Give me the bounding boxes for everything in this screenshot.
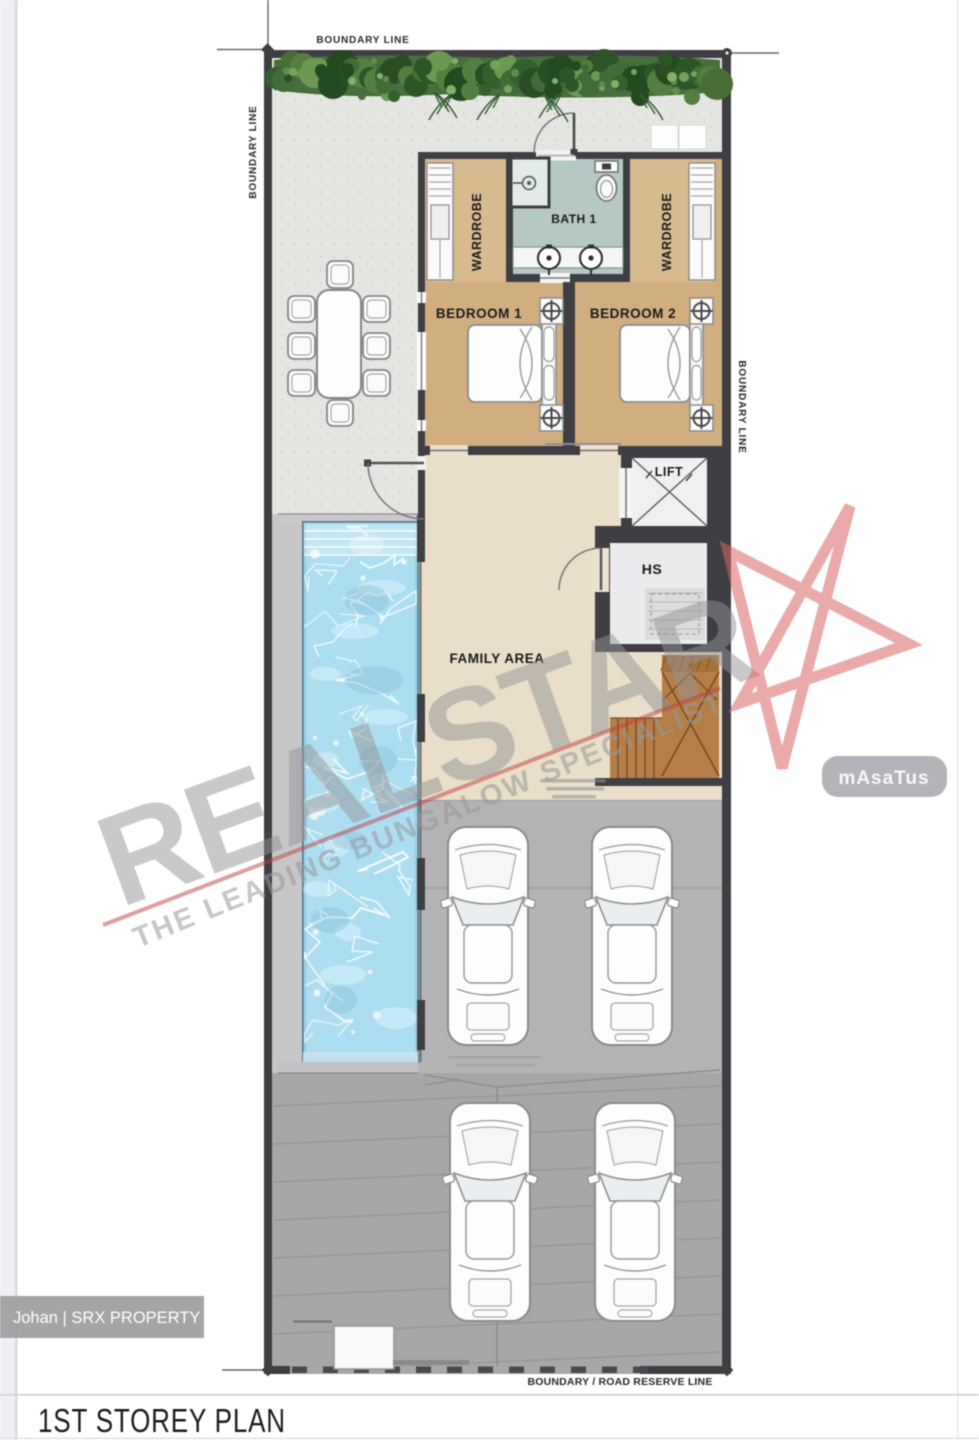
svg-text:BOUNDARY LINE: BOUNDARY LINE xyxy=(316,35,409,46)
svg-text:HS: HS xyxy=(642,561,662,577)
svg-text:BOUNDARY LINE: BOUNDARY LINE xyxy=(736,360,747,453)
svg-text:1ST STOREY PLAN: 1ST STOREY PLAN xyxy=(38,1403,286,1440)
svg-text:BOUNDARY LINE: BOUNDARY LINE xyxy=(248,105,259,198)
svg-text:LIFT: LIFT xyxy=(655,465,683,479)
svg-text:mAsaTus: mAsaTus xyxy=(838,768,929,789)
svg-text:Johan | SRX PROPERTY: Johan | SRX PROPERTY xyxy=(13,1309,200,1327)
svg-text:WARDROBE: WARDROBE xyxy=(660,193,674,271)
svg-text:WARDROBE: WARDROBE xyxy=(470,193,484,271)
svg-text:BEDROOM 2: BEDROOM 2 xyxy=(590,306,676,321)
svg-text:BOUNDARY / ROAD RESERVE LINE: BOUNDARY / ROAD RESERVE LINE xyxy=(527,1376,712,1388)
svg-text:BATH 1: BATH 1 xyxy=(551,212,596,226)
svg-text:BEDROOM 1: BEDROOM 1 xyxy=(436,306,522,321)
